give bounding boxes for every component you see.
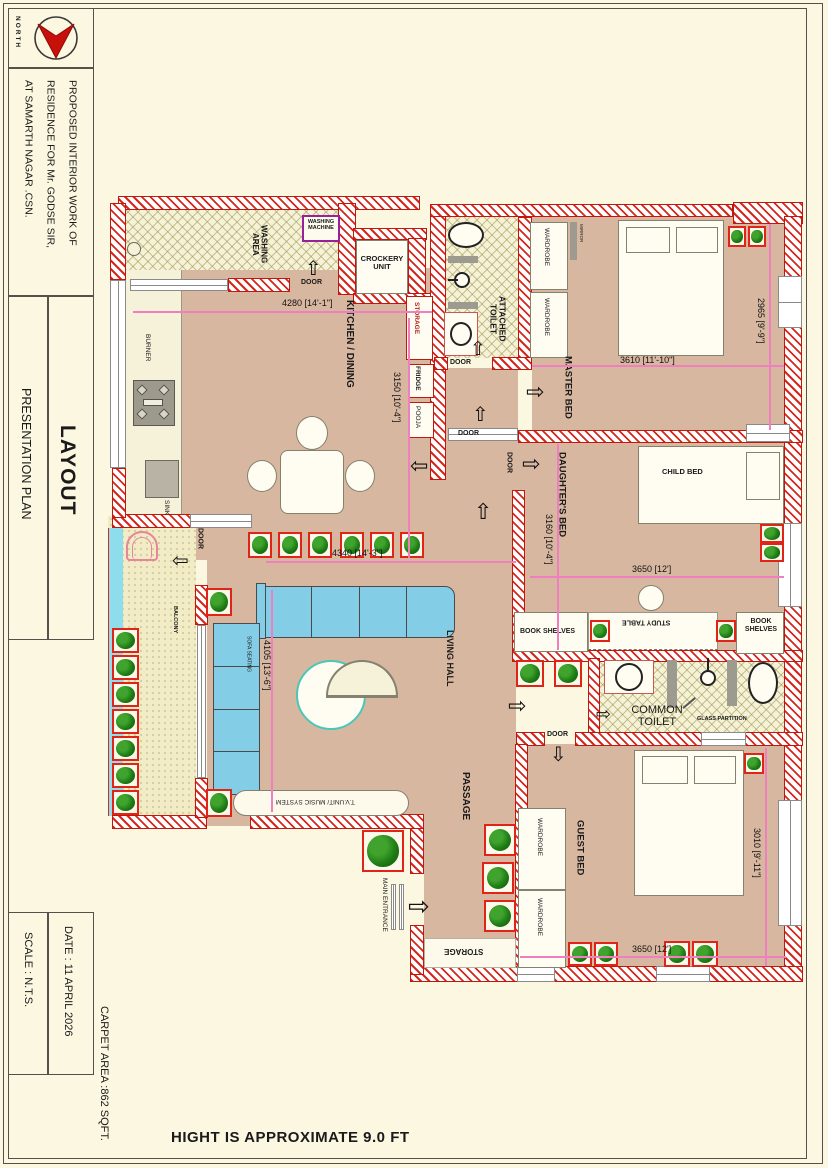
book-shelves-right-label: BOOK SHELVES [740,618,782,633]
kitchen-label: KITCHEN / DINING [344,300,355,430]
plant-icon [112,736,139,761]
washing-drain-icon [127,242,141,256]
north-compass-icon [30,12,82,64]
tv-back-wall [250,814,424,829]
master-right-window [778,276,802,328]
dining-chair-left [247,460,277,492]
attached-toilet-label: ATTACHED TOILET [488,282,507,356]
date-scale-divider [47,912,49,1075]
bottom-sill-b [656,966,710,982]
attached-door-label: DOOR [450,359,471,367]
attached-partition-b [448,302,478,309]
corridor-door-arrow-icon: ⇧ [472,404,489,424]
plant-icon [594,942,618,966]
common-shower-arm [707,658,709,672]
plant-icon [112,763,139,788]
book-shelves-left-label: BOOK SHELVES [520,628,575,636]
date-scale-cell [8,912,94,1075]
plant-icon [590,620,610,642]
sink-label: SINK [163,500,170,515]
entrance-door-leaf-b [399,884,404,930]
master-door-arrow-icon: ⇨ [526,382,544,404]
living-hall-label: LIVING HALL [444,630,454,692]
plan-top-wall [430,204,733,217]
attached-toilet-bottom-wall-a [434,357,448,370]
passage-label: PASSAGE [460,772,471,820]
fridge-label: FRIDGE [414,366,421,391]
dim-washing-width: 4280 [14'-1"] [282,298,332,308]
plant-icon [112,790,139,815]
entrance-side-wall [410,826,424,874]
dim-daughters-height: 3160 [10'-4"] [544,514,554,564]
daughters-stool [638,585,664,611]
guest-top-sill [701,732,746,746]
master-mirror-label: MIRROR [578,224,583,242]
kitchen-balcony-sill [190,514,252,528]
common-toilet-arrow-icon: ⇨ [596,706,611,724]
plant-icon [482,862,514,894]
dim-line [266,561,516,563]
crockery-unit-label: CROCKERY UNIT [358,255,406,272]
balcony-swing-chair-inner [132,537,152,559]
plant-icon [760,524,784,543]
guest-bed-label: GUEST BED [574,820,584,912]
drawing-title-divider [47,296,49,640]
dim-master-height: 2965 [9'-9"] [756,298,766,343]
carpet-area-note: CARPET AREA :862 SQFT. [98,1006,110,1141]
plant-icon [308,532,332,558]
sink-box [145,460,179,498]
dim-guest-width: 3650 [12'] [632,944,671,954]
attached-partition-a [448,256,478,263]
dim-line [557,444,559,650]
master-mirror [570,222,577,260]
daughters-door-arrow-icon: ⇨ [522,454,540,476]
project-title-line3: AT SAMARTH NAGAR .CSN. [22,80,34,290]
project-title-line1: PROPOSED INTERIOR WORK OF [66,80,78,290]
master-bottom-sill [746,424,790,442]
washing-door-arrow-icon: ⇧ [305,258,322,278]
kitchen-left-wall-lower [112,468,126,518]
dim-living-height: 4105 [13'-6"] [262,640,272,690]
plant-icon [112,709,139,734]
date-value: DATE : 11 APRIL 2026 [62,926,74,1036]
north-label: NORTH [14,16,21,49]
dim-guest-height: 3010 [9'-11"] [752,828,762,878]
guest-door-label: DOOR [547,731,568,739]
sofa-horizontal [263,586,455,638]
dim-line [271,590,273,812]
balcony-label: BALCONY [172,606,178,633]
hall-left-arrow-icon: ⇦ [410,456,428,478]
corridor-door-label: DOOR [458,430,479,438]
dim-living-width: 4340 [14'-3"] [332,548,382,558]
attached-wc-icon [448,222,484,248]
plant-icon [484,824,516,856]
attached-door-arrow-icon: ⇧ [470,340,486,359]
plan-bottom-wall [410,966,803,982]
entrance-door-leaf-a [391,884,396,930]
burner-label: BURNER [144,334,151,361]
plant-icon [728,226,746,247]
plant-icon [484,900,516,932]
dim-master-width: 3610 [11'-10"] [620,355,675,365]
master-pillow-2 [676,227,718,253]
kitchen-left-window [110,280,126,468]
plant-icon [248,532,272,558]
plant-icon [206,789,232,817]
pooja-label: POOJA [414,406,421,428]
washing-top-wall [118,196,420,210]
main-entrance-label: MAIN ENTRANCE [364,878,388,936]
entrance-arrow-icon: ⇨ [408,894,430,920]
hall-up-arrow-icon: ⇧ [474,502,492,524]
plant-icon [748,226,766,247]
dim-daughters-width: 3650 [12'] [632,564,671,574]
attached-shower-arm [448,279,458,281]
master-wardrobe-1-label: WARDROBE [543,228,550,266]
glass-partition-bar-a [667,660,677,708]
glass-partition-bar-b [727,660,737,706]
daughters-door-label: DOOR [505,452,513,473]
dim-line [408,318,410,558]
master-wardrobe-2-label: WARDROBE [543,298,550,336]
balcony-living-window [197,625,206,778]
washing-kitchen-wall [228,278,290,292]
dining-table [280,450,344,514]
dining-chair-right [345,460,375,492]
guest-pillow-2 [694,756,736,784]
balcony-bottom-wall [112,815,207,829]
scale-value: SCALE : N.T.S. [22,932,34,1007]
dim-line [520,956,786,958]
plant-icon [692,941,718,967]
guest-pillow-1 [642,756,688,784]
storage-unit-label: STORAGE [413,302,420,334]
bottom-sill-a [517,966,555,982]
common-toilet-label: COMMON TOILET [612,704,702,728]
plant-icon [206,588,232,616]
plant-icon [568,942,592,966]
child-bed-label: CHILD BED [662,468,703,476]
dim-line [769,224,771,430]
project-title-line2: RESIDENCE FOR Mr. GODSE SIR, [44,80,56,290]
plant-icon [112,628,139,653]
plant-icon [554,660,582,687]
washing-left-wall [110,203,126,280]
dim-line [530,576,784,578]
common-basin-bowl [615,663,643,691]
master-bed-label: MASTER BED [562,356,572,434]
washing-counter-window [130,279,228,291]
dim-line [532,365,784,367]
common-shower-icon [700,670,716,686]
plant-icon [112,682,139,707]
plant-icon [760,543,784,562]
burner-center [143,399,163,406]
plant-icon [744,753,764,774]
study-table-label: STUDY TABLE [622,618,670,626]
plant-icon [516,660,544,687]
balcony-door-arrow-icon: ⇦ [172,550,189,570]
glass-partition-label: GLASS PARTITION [697,716,747,722]
master-pillow-1 [626,227,670,253]
drawing-subtitle: PRESENTATION PLAN [18,388,32,520]
tv-unit-label: T.V.UNIT/ MUSIC SYSTEM [276,798,355,805]
common-wc-icon [748,662,778,704]
floor-plan-sheet: { "title_block": { "north_label": "NORTH… [0,0,828,1168]
sofa-seating-label: SOFA SEATING [245,636,251,672]
guest-right-window [778,800,802,926]
plant-icon [362,830,404,872]
sofa-vertical [213,623,260,795]
dim-kitchen-height: 3150 [10'-4"] [392,372,402,422]
crockery-right-wall [408,238,426,295]
guest-door-arrow-icon: ⇩ [550,744,567,764]
plant-icon [716,620,736,642]
guest-wardrobe-2-label: WARDROBE [536,898,543,936]
guest-wardrobe-1-label: WARDROBE [536,818,543,856]
plant-icon [278,532,302,558]
attached-toilet-bottom-wall-b [492,357,532,370]
storage-left-wall [410,925,424,975]
dim-line [133,311,432,313]
passage-right-arrow-icon: ⇨ [508,696,526,718]
washing-machine-label: WASHING MACHINE [304,219,338,231]
attached-basin-bowl [450,322,472,346]
drawing-title: LAYOUT [56,425,79,515]
balcony-door-label: DOOR [196,528,204,549]
washing-door-label: DOOR [301,279,322,287]
height-note: HIGHT IS APPROXIMATE 9.0 FT [171,1130,410,1147]
dining-chair-top [296,416,328,450]
child-bed-pillow [746,452,780,500]
plant-icon [400,532,424,558]
washing-area-label: WASHING AREA [250,214,268,274]
guest-top-wall-b [575,732,803,746]
dim-line [765,748,767,966]
washing-right-wall [338,203,356,295]
plant-icon [112,655,139,680]
storage-room-label: STORAGE [444,946,483,955]
